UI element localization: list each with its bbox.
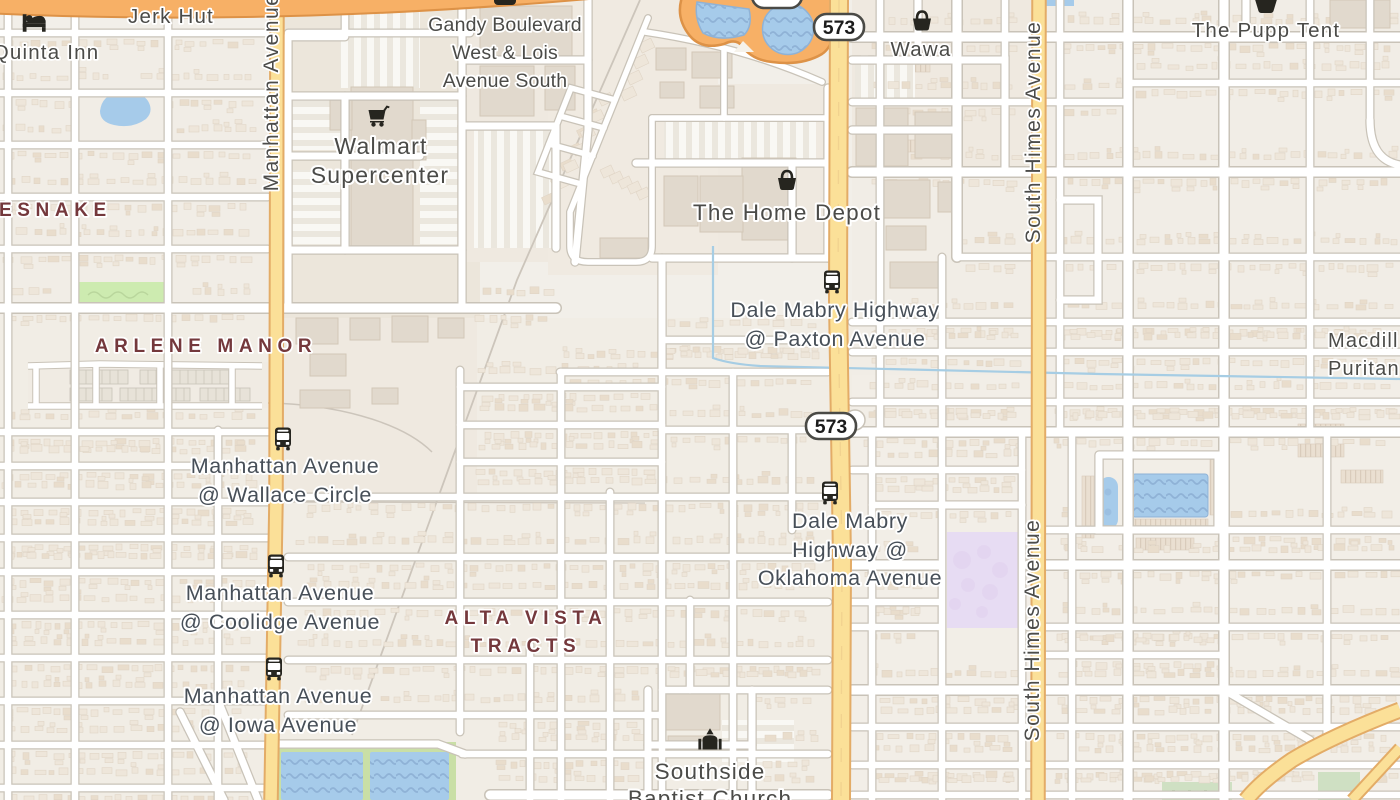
- svg-text:@ Iowa Avenue: @ Iowa Avenue: [199, 713, 357, 737]
- svg-text:Puritan: Puritan: [1328, 358, 1400, 380]
- svg-text:Highway @: Highway @: [792, 538, 908, 562]
- svg-text:Macdill A: Macdill A: [1328, 330, 1400, 352]
- svg-text:Wawa: Wawa: [891, 38, 952, 61]
- svg-text:Avenue South: Avenue South: [443, 70, 568, 92]
- svg-text:Walmart: Walmart: [334, 133, 427, 159]
- svg-text:Dale Mabry Highway: Dale Mabry Highway: [730, 298, 939, 322]
- svg-text:@ Paxton Avenue: @ Paxton Avenue: [744, 327, 925, 351]
- svg-text:Southside: Southside: [655, 759, 766, 784]
- svg-text:Baptist Church: Baptist Church: [628, 786, 792, 800]
- svg-text:Dale Mabry: Dale Mabry: [792, 509, 908, 533]
- svg-text:Oklahoma Avenue: Oklahoma Avenue: [758, 566, 942, 590]
- svg-text:Quinta Inn: Quinta Inn: [0, 41, 99, 64]
- svg-text:573: 573: [815, 416, 848, 438]
- svg-text:Manhattan Avenue: Manhattan Avenue: [186, 581, 375, 605]
- svg-text:The Home Depot: The Home Depot: [693, 200, 881, 225]
- svg-text:@ Wallace Circle: @ Wallace Circle: [198, 483, 372, 507]
- svg-text:TRACTS: TRACTS: [471, 636, 582, 657]
- svg-text:South Himes Avenue: South Himes Avenue: [1021, 519, 1044, 742]
- svg-text:Supercenter: Supercenter: [311, 162, 450, 188]
- svg-text:South Himes Avenue: South Himes Avenue: [1022, 21, 1045, 244]
- svg-text:Manhattan Avenue: Manhattan Avenue: [184, 684, 373, 708]
- svg-text:The Pupp Tent: The Pupp Tent: [1192, 19, 1341, 42]
- svg-text:Manhattan Avenue: Manhattan Avenue: [260, 0, 283, 191]
- svg-text:ALTA VISTA: ALTA VISTA: [445, 608, 608, 629]
- svg-text:573: 573: [823, 17, 856, 39]
- svg-text:West & Lois: West & Lois: [452, 42, 558, 64]
- svg-text:Jerk Hut: Jerk Hut: [128, 5, 214, 28]
- svg-text:Manhattan Avenue: Manhattan Avenue: [191, 454, 380, 478]
- svg-text:ARLENE MANOR: ARLENE MANOR: [95, 336, 317, 357]
- svg-text:@ Coolidge Avenue: @ Coolidge Avenue: [180, 610, 380, 634]
- svg-text:ESNAKE: ESNAKE: [0, 200, 112, 221]
- svg-text:Gandy Boulevard: Gandy Boulevard: [428, 14, 582, 36]
